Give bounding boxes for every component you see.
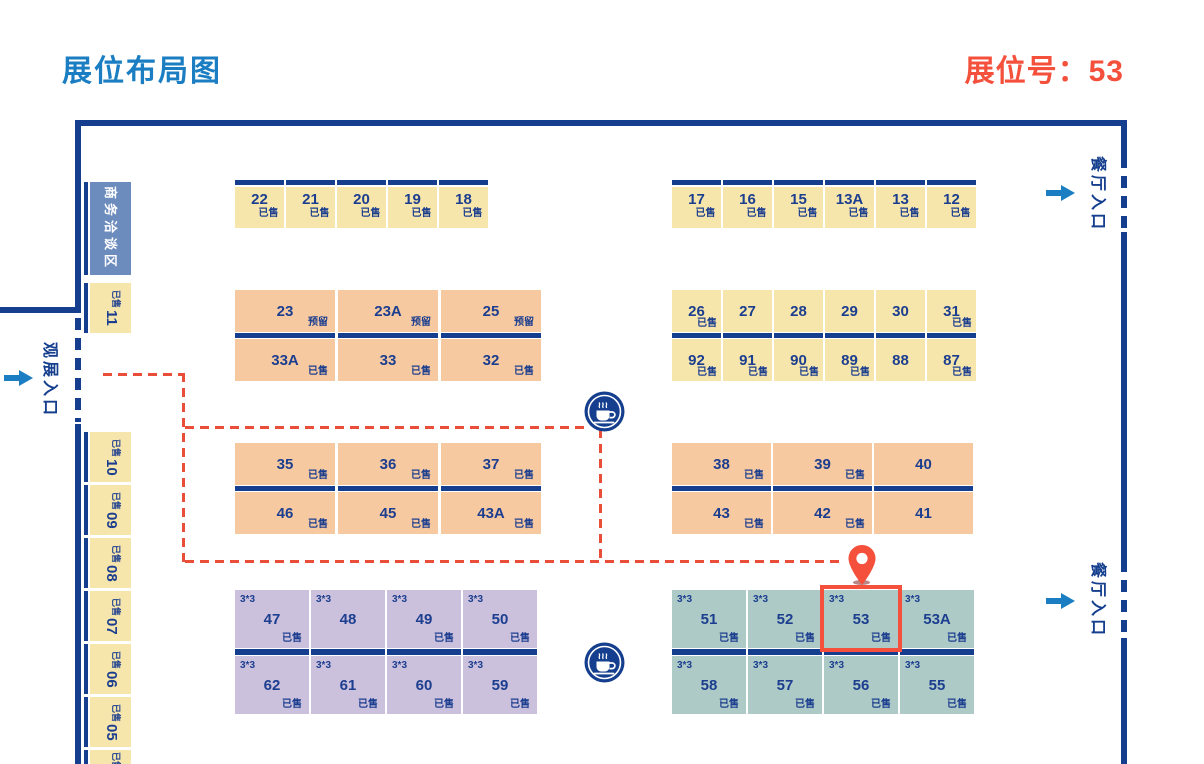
- route-segment: [185, 560, 845, 563]
- booth-status: 已售: [308, 366, 328, 378]
- floorplan-page: 展位布局图 展位号：53 观展入口 餐厅入口 餐厅入口 商务洽谈区 已售11 已…: [0, 0, 1204, 764]
- wall-right-entrance-gap-top: [1121, 156, 1127, 232]
- booth-size: 3*3: [392, 594, 407, 605]
- booth-status: 已售: [744, 519, 764, 531]
- booth-number: 10: [103, 459, 120, 476]
- booth-number: 58: [701, 677, 718, 694]
- booth-divider: [387, 649, 461, 655]
- route-segment: [182, 373, 185, 563]
- booth-number: 92: [688, 352, 705, 369]
- booth-number: 17: [672, 191, 721, 208]
- route-segment: [599, 429, 602, 561]
- booth-status: 已售: [783, 208, 832, 220]
- booth-topbar: [774, 180, 823, 185]
- booth-number: 23: [277, 303, 294, 320]
- booth-divider: [927, 333, 976, 338]
- booth-43A[interactable]: 43A已售: [441, 492, 541, 534]
- booth-divider: [672, 333, 721, 338]
- booth-88[interactable]: 88: [876, 339, 925, 381]
- booth-15[interactable]: 15已售: [774, 180, 823, 228]
- booth-status: 已售: [514, 366, 534, 378]
- booth-number: 61: [340, 677, 357, 694]
- booth-topbar: [337, 180, 386, 185]
- booth-number: 36: [380, 456, 397, 473]
- wall-left-upper: [75, 120, 81, 310]
- booth-size: 3*3: [753, 594, 768, 605]
- booth-status: 已售: [308, 470, 328, 482]
- booth-status: 已售: [111, 651, 121, 669]
- booth-09[interactable]: 已售09: [84, 485, 131, 535]
- booth-divider: [235, 486, 335, 491]
- booth-number: 46: [277, 505, 294, 522]
- booth-number: 41: [915, 505, 932, 522]
- booth-number: 27: [739, 303, 756, 320]
- booth-61[interactable]: 3*361已售: [311, 656, 385, 714]
- visitor-entrance-label: 观展入口: [38, 342, 60, 418]
- booth-size: 3*3: [392, 660, 407, 671]
- selected-booth-label: 展位号：53: [965, 46, 1124, 90]
- booth-status: 已售: [871, 699, 891, 711]
- booth-topbar: [927, 180, 976, 185]
- booth-52[interactable]: 3*352已售: [748, 590, 822, 648]
- booth-topbar: [388, 180, 437, 185]
- booth-number: 23A: [374, 303, 402, 320]
- booth-number: 30: [892, 303, 909, 320]
- booth-50[interactable]: 3*350已售: [463, 590, 537, 648]
- booth-53A[interactable]: 3*353A已售: [900, 590, 974, 648]
- booth-sidebar: [84, 432, 88, 482]
- booth-sidebar: [84, 697, 88, 747]
- booth-status: 已售: [952, 367, 972, 379]
- booth-number: 51: [701, 611, 718, 628]
- booth-divider: [723, 333, 772, 338]
- booth-size: 3*3: [316, 660, 331, 671]
- booth-size: 3*3: [468, 660, 483, 671]
- route-segment: [185, 426, 588, 429]
- booth-status: 已售: [111, 439, 121, 457]
- block-lower-left-grid: 35已售46已售 36已售45已售 37已售43A已售: [235, 443, 541, 534]
- booth-status: 已售: [795, 633, 815, 645]
- booth-33A[interactable]: 33A已售: [235, 339, 335, 381]
- booth-status: 已售: [845, 470, 865, 482]
- booth-number: 32: [483, 352, 500, 369]
- booth-07[interactable]: 已售07: [84, 591, 131, 641]
- booth-topbar: [876, 180, 925, 185]
- booth-status: 预留: [308, 317, 328, 329]
- arrow-right-icon: [1046, 184, 1076, 202]
- booth-number: 08: [103, 565, 120, 582]
- booth-divider: [311, 649, 385, 655]
- booth-divider: [876, 333, 925, 338]
- booth-status: 已售: [510, 699, 530, 711]
- booth-status: 已售: [947, 699, 967, 711]
- booth-number: 13: [876, 191, 925, 208]
- booth-number: 42: [814, 505, 831, 522]
- wall-entrance-stub: [0, 307, 81, 313]
- page-title: 展位布局图: [62, 46, 222, 90]
- booth-10[interactable]: 已售10: [84, 432, 131, 482]
- booth-number: 13A: [825, 191, 874, 208]
- booth-A[interactable]: 已售A: [84, 750, 131, 764]
- booth-size: 3*3: [905, 594, 920, 605]
- booth-sidebar: [84, 591, 88, 641]
- booth-89[interactable]: 89已售: [825, 339, 874, 381]
- booth-status: 已售: [411, 470, 431, 482]
- booth-number: 33A: [271, 352, 299, 369]
- booth-status: 已售: [885, 208, 934, 220]
- booth-status: 已售: [358, 699, 378, 711]
- booth-status: 已售: [308, 519, 328, 531]
- wall-right-1: [1121, 120, 1127, 156]
- booth-status: 已售: [434, 699, 454, 711]
- booth-27[interactable]: 27: [723, 290, 772, 332]
- booth-number: 55: [929, 677, 946, 694]
- booth-status: 已售: [947, 633, 967, 645]
- booth-status: 已售: [282, 699, 302, 711]
- booth-number: 19: [388, 191, 437, 208]
- booth-number: 91: [739, 352, 756, 369]
- booth-number: 38: [713, 456, 730, 473]
- booth-sidebar: [84, 538, 88, 588]
- booth-number: 87: [943, 352, 960, 369]
- booth-40[interactable]: 40: [874, 443, 973, 485]
- booth-number: 52: [777, 611, 794, 628]
- booth-status: 已售: [397, 208, 446, 220]
- booth-number: 05: [103, 724, 120, 741]
- booth-status: 已售: [111, 704, 121, 722]
- booth-status: 已售: [514, 519, 534, 531]
- booth-number: 07: [103, 618, 120, 635]
- booth-number: 45: [380, 505, 397, 522]
- route-segment: [103, 373, 183, 376]
- wall-left-lower: [75, 424, 81, 764]
- booth-divider: [235, 649, 309, 655]
- booth-number: 06: [103, 671, 120, 688]
- booth-status: 已售: [952, 318, 972, 330]
- booth-topbar: [439, 180, 488, 185]
- booth-status: 已售: [282, 633, 302, 645]
- booth-status: 已售: [719, 633, 739, 645]
- booth-divider: [773, 486, 872, 491]
- booth-39[interactable]: 39已售: [773, 443, 872, 485]
- booth-60[interactable]: 3*360已售: [387, 656, 461, 714]
- booth-status: 已售: [748, 367, 768, 379]
- coffee-icon: [584, 391, 625, 432]
- booth-number: 56: [853, 677, 870, 694]
- booth-sidebar: [84, 485, 88, 535]
- booth-divider: [825, 333, 874, 338]
- booth-13[interactable]: 13已售: [876, 180, 925, 228]
- booth-status: 已售: [795, 699, 815, 711]
- booth-sidebar: [84, 750, 88, 764]
- booth-number: 49: [416, 611, 433, 628]
- booth-90[interactable]: 90已售: [774, 339, 823, 381]
- booth-size: 3*3: [240, 594, 255, 605]
- booth-number: 88: [892, 352, 909, 369]
- booth-size: 3*3: [905, 660, 920, 671]
- booth-divider: [748, 649, 822, 655]
- booth-sidebar: [84, 283, 88, 333]
- booth-22[interactable]: 22已售: [235, 180, 284, 228]
- booth-topbar: [825, 180, 874, 185]
- booth-number: 60: [416, 677, 433, 694]
- booth-number: 16: [723, 191, 772, 208]
- booth-number: 33: [380, 352, 397, 369]
- booth-number: 18: [439, 191, 488, 208]
- booth-status: 预留: [514, 317, 534, 329]
- booth-number: 12: [927, 191, 976, 208]
- booth-status: 已售: [514, 470, 534, 482]
- booth-status: 已售: [111, 598, 121, 616]
- block-mid-left-grid: 23预留33A已售 23A预留33已售 25预留32已售: [235, 290, 541, 381]
- booth-number: 53A: [923, 611, 951, 628]
- booth-status: 已售: [411, 366, 431, 378]
- booth-number: 25: [483, 303, 500, 320]
- wall-right-3: [1121, 638, 1127, 764]
- booth-33[interactable]: 33已售: [338, 339, 438, 381]
- booth-53-highlight: [820, 585, 902, 652]
- booth-number: 62: [264, 677, 281, 694]
- booth-status: 已售: [845, 519, 865, 531]
- booth-sidebar: [84, 644, 88, 694]
- booth-91[interactable]: 91已售: [723, 339, 772, 381]
- booth-06[interactable]: 已售06: [84, 644, 131, 694]
- wall-right-2: [1121, 232, 1127, 560]
- restaurant-entrance-bottom-label: 餐厅入口: [1086, 562, 1108, 638]
- booth-47[interactable]: 3*347已售: [235, 590, 309, 648]
- booth-status: 已售: [244, 208, 293, 220]
- booth-12[interactable]: 12已售: [927, 180, 976, 228]
- booth-topbar: [723, 180, 772, 185]
- booth-number: 35: [277, 456, 294, 473]
- booth-58[interactable]: 3*358已售: [672, 656, 746, 714]
- booth-26[interactable]: 26已售: [672, 290, 721, 332]
- booth-size: 3*3: [677, 660, 692, 671]
- coffee-icon: [584, 642, 625, 683]
- booth-13A[interactable]: 13A已售: [825, 180, 874, 228]
- booth-23A[interactable]: 23A预留: [338, 290, 438, 332]
- booth-number: 21: [286, 191, 335, 208]
- booth-56[interactable]: 3*356已售: [824, 656, 898, 714]
- booth-number: 43A: [477, 505, 505, 522]
- booth-number: 15: [774, 191, 823, 208]
- booth-divider: [874, 486, 973, 491]
- booth-51[interactable]: 3*351已售: [672, 590, 746, 648]
- booth-36[interactable]: 36已售: [338, 443, 438, 485]
- arrow-right-icon: [4, 369, 34, 387]
- booth-25[interactable]: 25预留: [441, 290, 541, 332]
- restaurant-entrance-top-label: 餐厅入口: [1086, 156, 1108, 232]
- booth-59[interactable]: 3*359已售: [463, 656, 537, 714]
- booth-status: 已售: [434, 633, 454, 645]
- booth-status: 已售: [732, 208, 781, 220]
- booth-status: 已售: [111, 492, 121, 510]
- booth-divider: [235, 333, 335, 338]
- booth-size: 3*3: [829, 660, 844, 671]
- booth-number: 89: [841, 352, 858, 369]
- booth-08[interactable]: 已售08: [84, 538, 131, 588]
- wall-right-entrance-gap-bottom: [1121, 560, 1127, 638]
- booth-number: 57: [777, 677, 794, 694]
- booth-status: 已售: [697, 318, 717, 330]
- booth-status: 已售: [510, 633, 530, 645]
- booth-number: 29: [841, 303, 858, 320]
- booth-35[interactable]: 35已售: [235, 443, 335, 485]
- booth-number: 26: [688, 303, 705, 320]
- wall-left-entrance-gap: [75, 318, 81, 422]
- booth-42[interactable]: 42已售: [773, 492, 872, 534]
- booth-number: 11: [103, 310, 120, 326]
- booth-divider: [338, 486, 438, 491]
- booth-status: 已售: [295, 208, 344, 220]
- booth-23[interactable]: 23预留: [235, 290, 335, 332]
- booth-status: 已售: [719, 699, 739, 711]
- booth-number: 50: [492, 611, 509, 628]
- booth-status: 已售: [834, 208, 883, 220]
- booth-divider: [900, 649, 974, 655]
- booth-38[interactable]: 38已售: [672, 443, 771, 485]
- booth-number: 20: [337, 191, 386, 208]
- block-lower-right-grid: 38已售43已售 39已售42已售 4041: [672, 443, 973, 534]
- booth-92[interactable]: 92已售: [672, 339, 721, 381]
- booth-11[interactable]: 已售11: [84, 283, 131, 333]
- booth-number: 90: [790, 352, 807, 369]
- booth-37[interactable]: 37已售: [441, 443, 541, 485]
- booth-57[interactable]: 3*357已售: [748, 656, 822, 714]
- booth-16[interactable]: 16已售: [723, 180, 772, 228]
- booth-17[interactable]: 17已售: [672, 180, 721, 228]
- booth-48[interactable]: 3*348: [311, 590, 385, 648]
- booth-87[interactable]: 87已售: [927, 339, 976, 381]
- booth-number: 28: [790, 303, 807, 320]
- booth-55[interactable]: 3*355已售: [900, 656, 974, 714]
- booth-20[interactable]: 20已售: [337, 180, 386, 228]
- booth-status: 预留: [411, 317, 431, 329]
- booth-05[interactable]: 已售05: [84, 697, 131, 747]
- arrow-right-icon: [1046, 592, 1076, 610]
- booth-46[interactable]: 46已售: [235, 492, 335, 534]
- booth-number: 59: [492, 677, 509, 694]
- booth-size: 3*3: [240, 660, 255, 671]
- booth-status: 已售: [681, 208, 730, 220]
- booth-number: 47: [264, 611, 281, 628]
- booth-status: 已售: [744, 470, 764, 482]
- booth-status: 已售: [799, 367, 819, 379]
- booth-29[interactable]: 29: [825, 290, 874, 332]
- block-bottom-left-grid: 3*347已售3*362已售 3*3483*361已售 3*349已售3*360…: [235, 590, 537, 714]
- block-top-right-row: 17已售 16已售 15已售 13A已售 13已售 12已售: [672, 180, 976, 228]
- negotiation-area-label: 商务洽谈区: [90, 182, 131, 275]
- booth-status: 已售: [111, 290, 121, 308]
- booth-62[interactable]: 3*362已售: [235, 656, 309, 714]
- booth-size: 3*3: [677, 594, 692, 605]
- booth-topbar: [286, 180, 335, 185]
- booth-status: 已售: [936, 208, 985, 220]
- booth-32[interactable]: 32已售: [441, 339, 541, 381]
- booth-49[interactable]: 3*349已售: [387, 590, 461, 648]
- booth-number: 43: [713, 505, 730, 522]
- booth-divider: [338, 333, 438, 338]
- booth-status: 已售: [411, 519, 431, 531]
- block-top-left-row: 22已售 21已售 20已售 19已售 18已售: [235, 180, 488, 228]
- booth-number: 48: [340, 611, 357, 628]
- booth-43[interactable]: 43已售: [672, 492, 771, 534]
- booth-number: 09: [103, 512, 120, 529]
- booth-18[interactable]: 18已售: [439, 180, 488, 228]
- booth-status: 已售: [346, 208, 395, 220]
- wall-top: [75, 120, 1127, 126]
- booth-28[interactable]: 28: [774, 290, 823, 332]
- booth-size: 3*3: [753, 660, 768, 671]
- booth-divider: [672, 486, 771, 491]
- location-pin-icon: [845, 544, 879, 586]
- booth-divider: [441, 486, 541, 491]
- booth-number: 31: [943, 303, 960, 320]
- negotiation-area[interactable]: 商务洽谈区: [84, 182, 131, 275]
- booth-number: 39: [814, 456, 831, 473]
- booth-number: 37: [483, 456, 500, 473]
- booth-number: 22: [235, 191, 284, 208]
- booth-topbar: [672, 180, 721, 185]
- booth-sidebar: [84, 182, 88, 275]
- booth-status: 已售: [697, 367, 717, 379]
- booth-size: 3*3: [468, 594, 483, 605]
- block-mid-right-grid: 26已售92已售 2791已售 2890已售 2989已售 3088 31已售8…: [672, 290, 976, 381]
- booth-divider: [441, 333, 541, 338]
- booth-status: 已售: [111, 545, 121, 563]
- booth-topbar: [235, 180, 284, 185]
- booth-status: 已售: [850, 367, 870, 379]
- booth-status: 已售: [448, 208, 497, 220]
- booth-size: 3*3: [316, 594, 331, 605]
- booth-number: 40: [915, 456, 932, 473]
- booth-divider: [672, 649, 746, 655]
- booth-status: 已售: [111, 752, 121, 764]
- booth-19[interactable]: 19已售: [388, 180, 437, 228]
- booth-31[interactable]: 31已售: [927, 290, 976, 332]
- booth-41[interactable]: 41: [874, 492, 973, 534]
- booth-30[interactable]: 30: [876, 290, 925, 332]
- booth-divider: [774, 333, 823, 338]
- booth-45[interactable]: 45已售: [338, 492, 438, 534]
- booth-divider: [463, 649, 537, 655]
- booth-21[interactable]: 21已售: [286, 180, 335, 228]
